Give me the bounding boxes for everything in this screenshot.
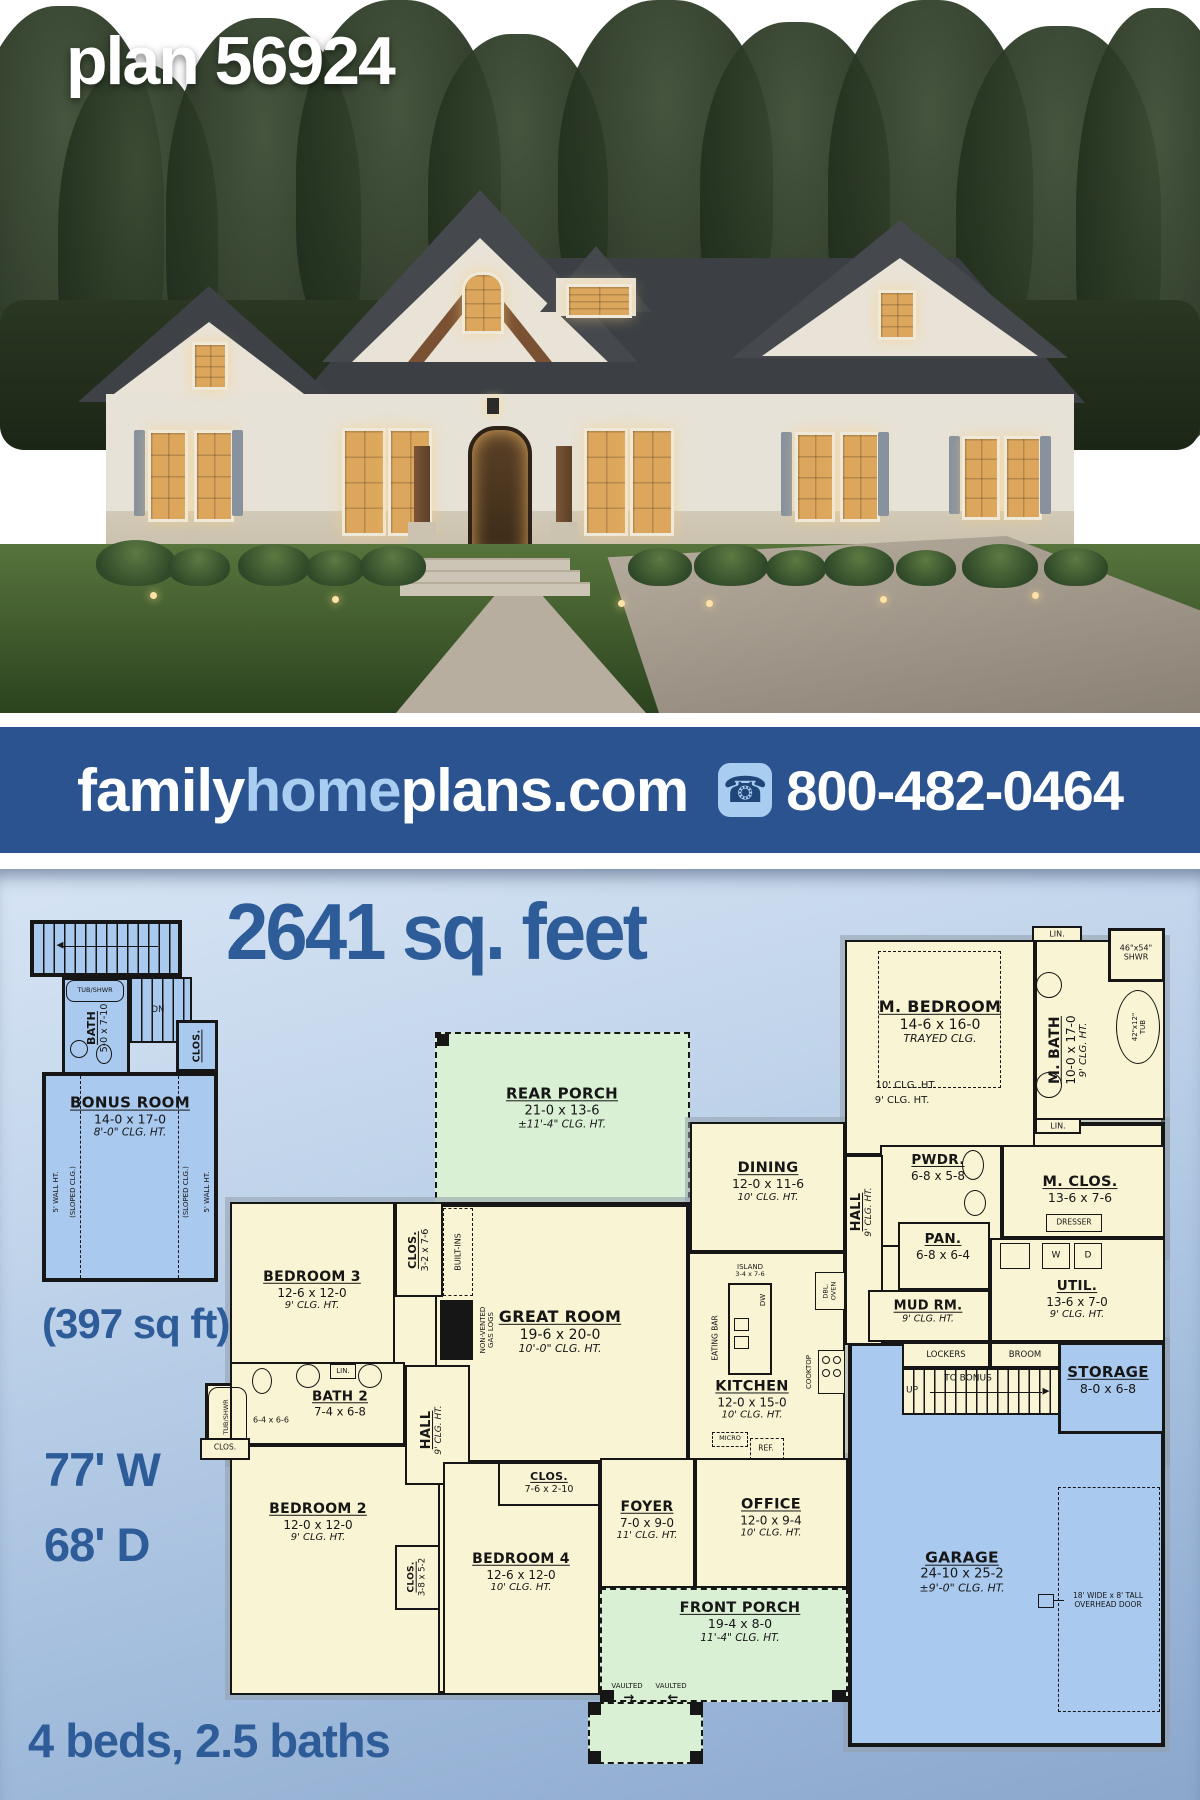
shrub [1044, 548, 1108, 586]
shrub [896, 550, 956, 586]
phone-icon: ☎ [718, 763, 772, 817]
shrub [694, 544, 768, 586]
landscape-light [332, 596, 339, 603]
brand-banner: familyhomeplans.com ☎ 800-482-0464 [0, 727, 1200, 853]
front-window [795, 432, 835, 522]
bonus-sqft: (397 sq ft) [42, 1300, 229, 1348]
shrub [168, 548, 230, 586]
phone-number[interactable]: 800-482-0464 [786, 758, 1123, 823]
plan-depth: 68' D [44, 1517, 149, 1572]
front-window [194, 430, 234, 522]
brand-wordmark[interactable]: familyhomeplans.com [77, 756, 688, 825]
porch-steps [420, 558, 570, 570]
front-door [468, 426, 532, 562]
window-shutter [1040, 436, 1051, 514]
beds-baths: 4 beds, 2.5 baths [28, 1713, 390, 1768]
landscape-light [706, 600, 713, 607]
window-shutter [878, 432, 889, 516]
landscape-light [618, 600, 625, 607]
shrub [628, 548, 692, 586]
window-shutter [781, 432, 792, 516]
front-window [840, 432, 880, 522]
window-shutter [949, 436, 960, 514]
sqft-headline: 2641 sq. feet [226, 886, 645, 978]
shrub [360, 546, 426, 586]
front-window [1004, 436, 1042, 520]
left-gable-window [192, 342, 228, 390]
front-window [584, 428, 628, 536]
brand-plans: plans.com [400, 757, 688, 824]
landscape-light [880, 596, 887, 603]
shrub [824, 546, 894, 586]
shrub [96, 540, 176, 586]
brand-family: family [77, 757, 244, 824]
house-photo: plan 56924 [0, 0, 1200, 713]
landscape-light [150, 592, 157, 599]
window-shutter [232, 430, 243, 516]
pin-image: plan 56924 familyhomeplans.com ☎ 800-482… [0, 0, 1200, 1800]
shrub [766, 550, 826, 586]
phone-block: ☎ 800-482-0464 [718, 758, 1123, 823]
plan-title: plan 56924 [66, 22, 394, 100]
shrub [238, 544, 310, 586]
plan-width: 77' W [44, 1442, 160, 1497]
porch-steps [410, 570, 580, 582]
front-window [342, 428, 386, 536]
brand-home: home [244, 757, 400, 824]
landscape-light [1032, 592, 1039, 599]
front-window [630, 428, 674, 536]
porch-lantern [487, 398, 499, 414]
window-shutter [134, 430, 145, 516]
front-window [148, 430, 188, 522]
shrub [962, 544, 1038, 588]
center-gable-window [462, 272, 504, 334]
shrub [306, 550, 364, 586]
porch-steps [400, 582, 590, 596]
front-window [962, 436, 1000, 520]
right-gable-window [878, 290, 916, 340]
dormer-window [566, 284, 632, 318]
